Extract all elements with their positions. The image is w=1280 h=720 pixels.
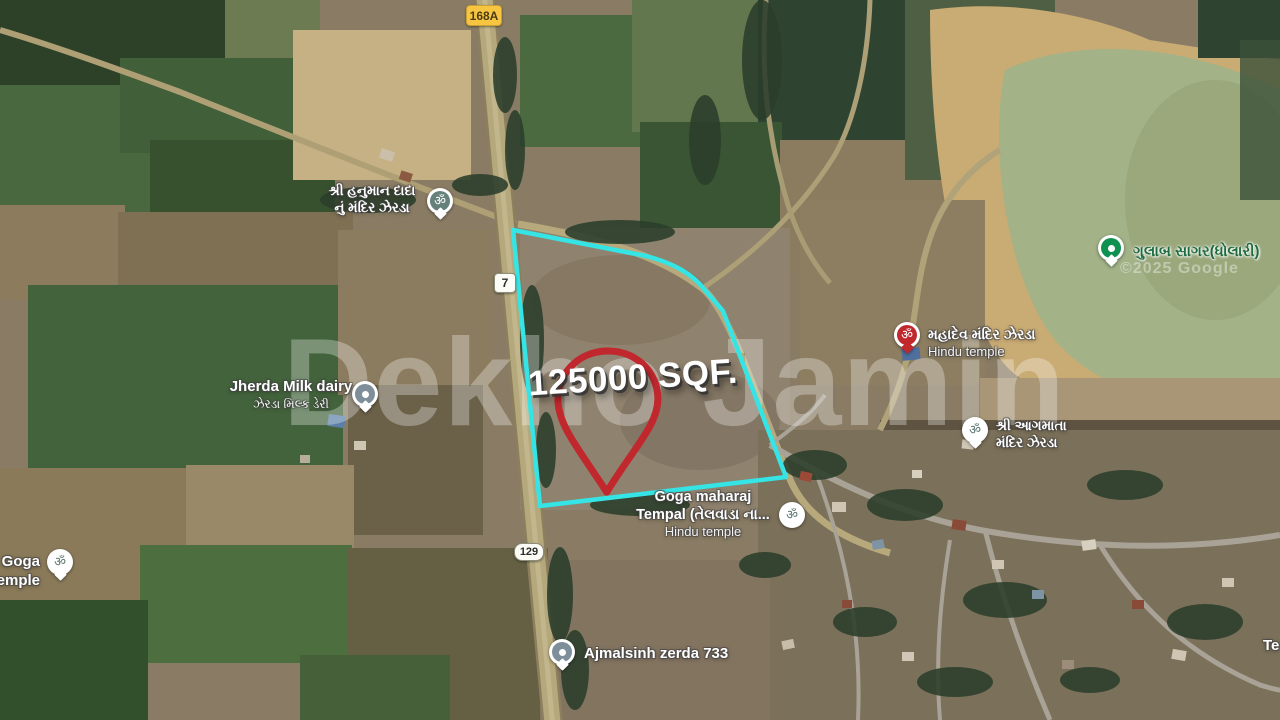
- route-shield-7: 7: [494, 273, 516, 293]
- ajmalsinh-pin[interactable]: [549, 639, 575, 674]
- poi-dot-icon: [362, 391, 369, 398]
- om-icon: ॐ: [786, 509, 798, 522]
- ajmalsinh-label[interactable]: Ajmalsinh zerda 733: [584, 645, 728, 664]
- milk-dairy-label[interactable]: Jherda Milk dairy ઝેરડા મિલ્ક ડેરી: [228, 378, 354, 412]
- highway-shield-168a: 168A: [466, 5, 502, 26]
- om-icon: ॐ: [901, 329, 913, 342]
- label-line: ઝેરડા મિલ્ક ડેરી: [228, 397, 354, 412]
- goga-maharaj-temple-label[interactable]: Goga maharaj Tempal (તેલવાડા ના... Hindu…: [628, 488, 778, 541]
- label-line: મંદિર ઝેરડા: [996, 435, 1067, 452]
- label-line: Jherda Milk dairy: [228, 378, 354, 397]
- hanuman-temple-pin[interactable]: ॐ: [427, 188, 453, 223]
- goga-temple-label[interactable]: Goga temple: [0, 553, 40, 591]
- mahadev-temple-pin[interactable]: ॐ: [894, 322, 920, 357]
- label-line: Hindu temple: [628, 524, 778, 540]
- label-line: શ્રી હનુમાન દાદા: [318, 183, 426, 200]
- agmata-temple-pin[interactable]: ॐ: [962, 417, 988, 452]
- label-line: Tempal (તેલવાડા ના...: [628, 506, 778, 524]
- satellite-map: Dekho Jamin ©2025 Google 125000 SQF. 168…: [0, 0, 1280, 720]
- route-shield-129: 129: [514, 543, 544, 561]
- agmata-temple-label[interactable]: શ્રી આગમાતા મંદિર ઝેરડા: [996, 418, 1067, 452]
- poi-dot-icon: [1108, 245, 1115, 252]
- label-line: નું મંદિર ઝેરડા: [318, 200, 426, 217]
- label-line: Goga: [0, 553, 40, 572]
- label-line: Hindu temple: [928, 344, 1035, 360]
- label-line: Goga maharaj: [628, 488, 778, 506]
- truncated-right-label[interactable]: Te: [1263, 637, 1279, 656]
- mahadev-temple-label[interactable]: મહાદેવ મંદિર ઝેરડા Hindu temple: [928, 326, 1035, 360]
- poi-dot-icon: [559, 649, 566, 656]
- gulab-sagar-pin[interactable]: [1098, 235, 1124, 270]
- om-icon: ॐ: [434, 195, 446, 208]
- milk-dairy-pin[interactable]: [352, 381, 378, 416]
- goga-maharaj-temple-pin[interactable]: ॐ: [779, 502, 805, 528]
- om-icon: ॐ: [54, 556, 66, 569]
- label-line: શ્રી આગમાતા: [996, 418, 1067, 435]
- goga-temple-pin[interactable]: ॐ: [47, 549, 73, 584]
- om-icon: ॐ: [969, 424, 981, 437]
- gulab-sagar-label[interactable]: ગુલાબ સાગર(ધોલારી): [1133, 243, 1260, 260]
- label-line: temple: [0, 572, 40, 591]
- hanuman-temple-label[interactable]: શ્રી હનુમાન દાદા નું મંદિર ઝેરડા: [318, 183, 426, 217]
- label-line: મહાદેવ મંદિર ઝેરડા: [928, 326, 1035, 344]
